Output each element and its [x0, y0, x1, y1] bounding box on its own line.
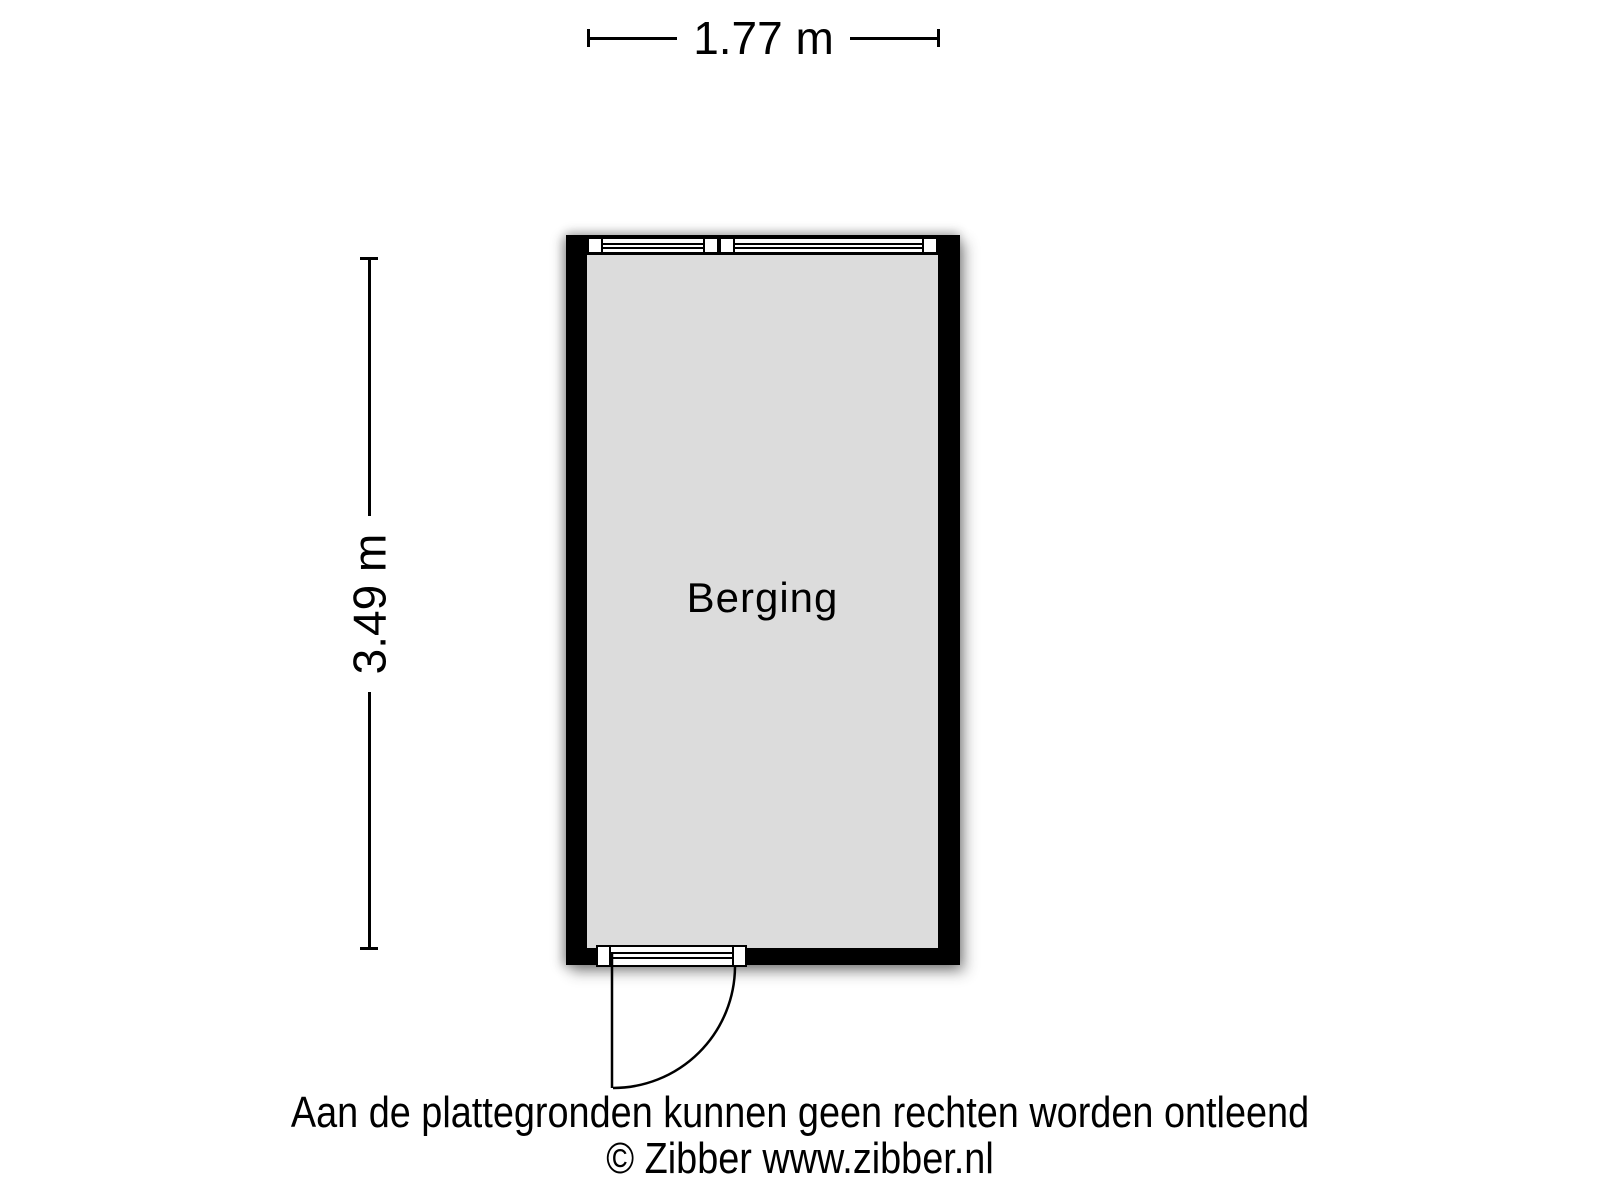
width-dimension: 1.77 m: [587, 14, 940, 62]
window-frame-pad: [589, 239, 601, 252]
disclaimer-text: Aan de plattegronden kunnen geen rechten…: [112, 1090, 1488, 1136]
door-threshold-lines: [609, 947, 734, 965]
room-label: Berging: [687, 574, 839, 622]
window-glazing: [733, 239, 924, 252]
window-top: [587, 237, 938, 254]
dimension-tick-bottom: [360, 947, 378, 950]
window-frame-pad: [924, 239, 936, 252]
dimension-line-segment: [850, 37, 937, 40]
window-frame-pad: [705, 239, 717, 252]
door-opening: [596, 945, 747, 967]
window-frame-pad: [721, 239, 733, 252]
door-jamb-left: [598, 947, 609, 965]
height-dimension-label: 3.49 m: [345, 516, 393, 692]
footer: Aan de plattegronden kunnen geen rechten…: [0, 1090, 1600, 1182]
height-dimension: 3.49 m: [345, 257, 393, 950]
dimension-line-segment: [368, 260, 371, 516]
dimension-tick-right: [937, 29, 940, 47]
width-dimension-label: 1.77 m: [677, 14, 850, 62]
window-unit-left: [587, 237, 719, 254]
window-unit-right: [719, 237, 938, 254]
window-glazing: [601, 239, 705, 252]
door-threshold: [596, 945, 747, 967]
door-arc: [613, 967, 735, 1088]
room-floor: Berging: [587, 255, 938, 948]
dimension-line-segment: [590, 37, 677, 40]
room-berging: Berging: [566, 235, 960, 965]
door-jamb-right: [734, 947, 745, 965]
dimension-line-segment: [368, 692, 371, 948]
copyright-text: © Zibber www.zibber.nl: [112, 1136, 1488, 1182]
floorplan-canvas: 1.77 m 3.49 m Berging: [0, 0, 1600, 1200]
